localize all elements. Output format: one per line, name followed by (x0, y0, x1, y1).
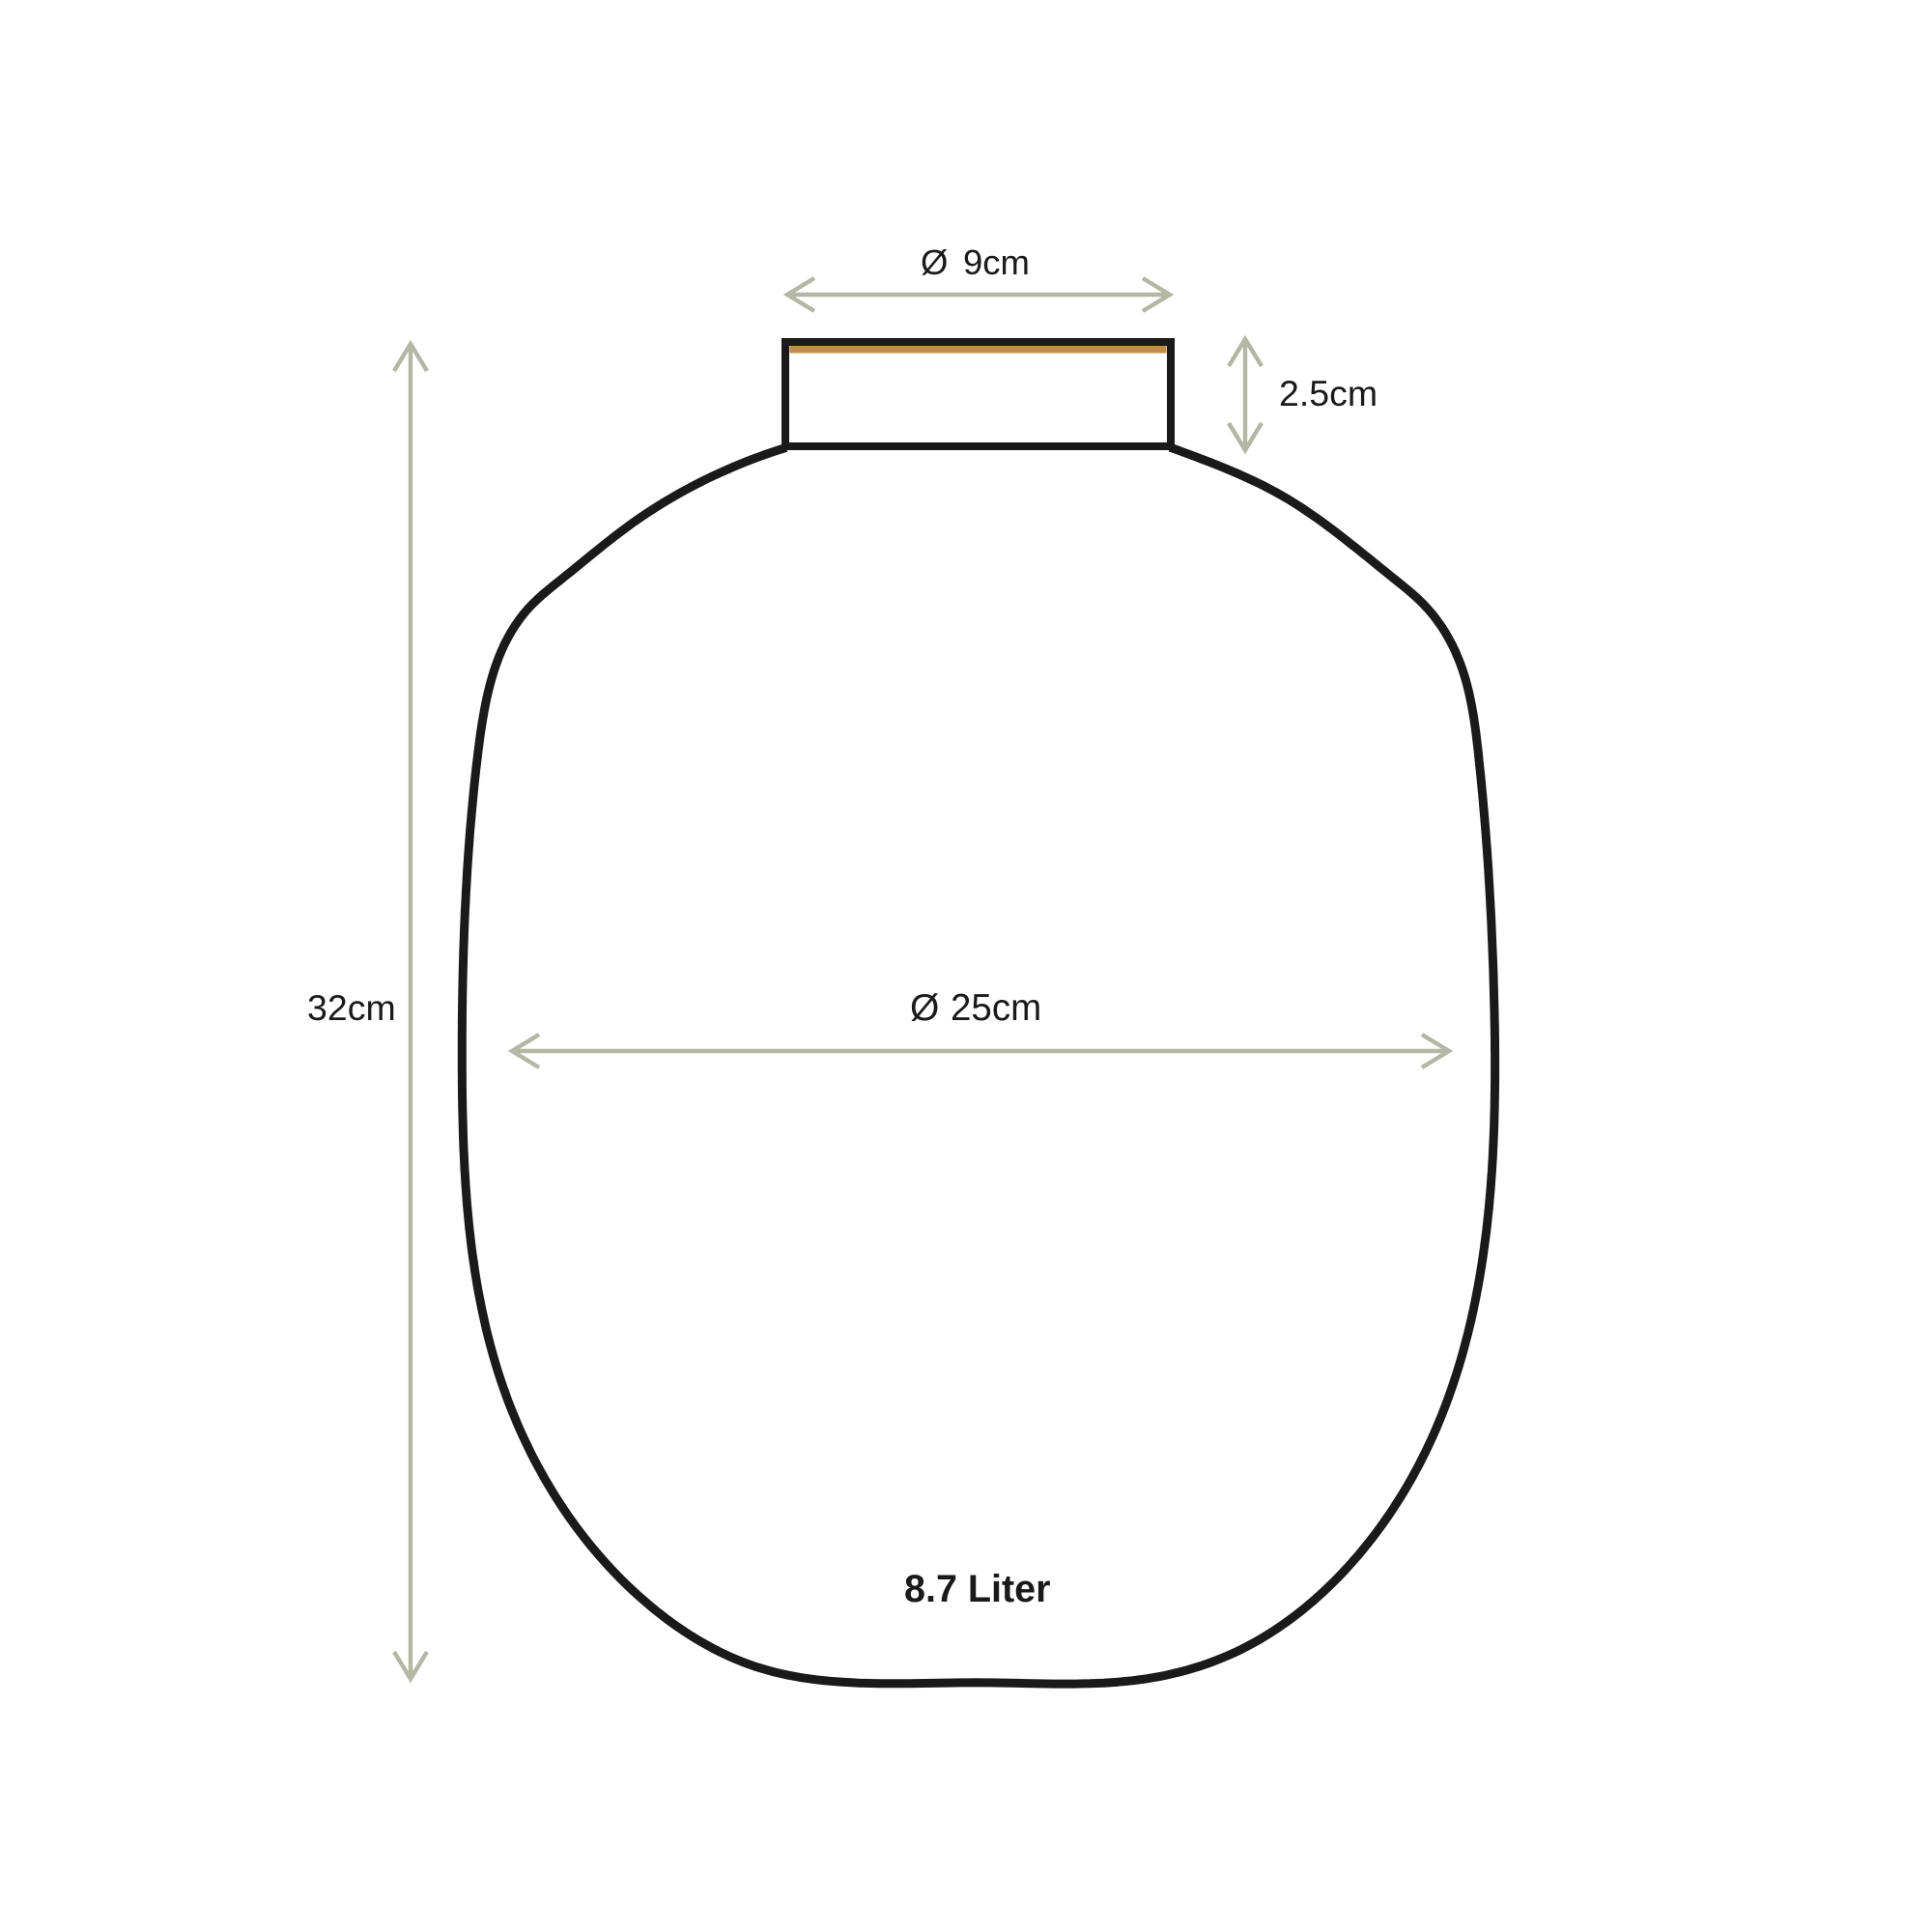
svg-text:Ø: Ø (921, 242, 948, 282)
svg-text:25cm: 25cm (951, 987, 1041, 1029)
svg-text:2.5cm: 2.5cm (1279, 373, 1378, 413)
svg-text:Ø: Ø (910, 987, 939, 1029)
svg-text:9cm: 9cm (963, 242, 1030, 282)
svg-text:32cm: 32cm (307, 987, 396, 1028)
svg-text:8.7 Liter: 8.7 Liter (904, 1568, 1050, 1610)
